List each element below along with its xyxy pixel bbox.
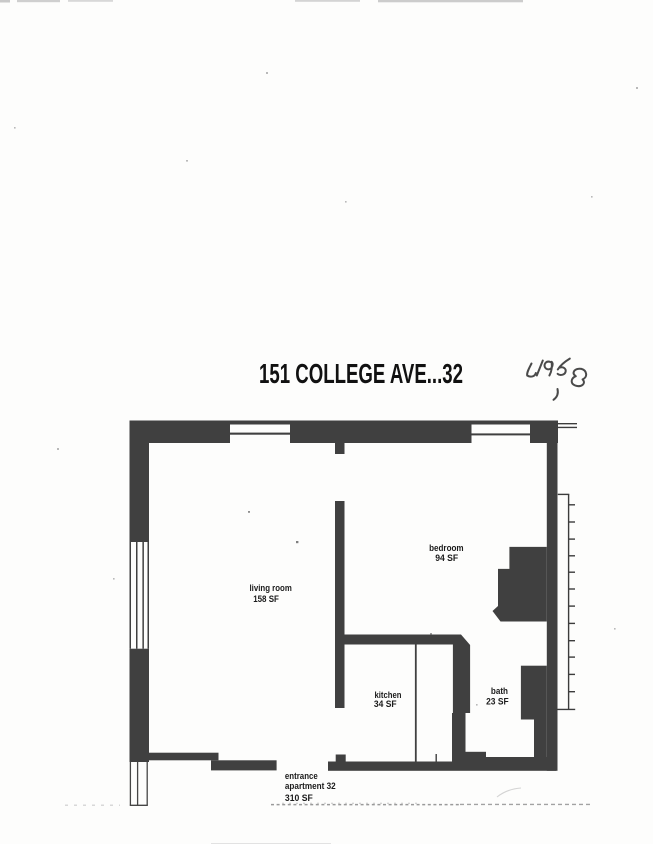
svg-text:94 SF: 94 SF xyxy=(435,553,458,563)
svg-text:158 SF: 158 SF xyxy=(253,594,279,604)
svg-text:23 SF: 23 SF xyxy=(486,697,509,707)
svg-text:bedroom: bedroom xyxy=(429,543,464,553)
svg-text:apartment 32: apartment 32 xyxy=(285,781,336,792)
svg-text:bath: bath xyxy=(491,686,508,696)
svg-text:151 COLLEGE AVE...32: 151 COLLEGE AVE...32 xyxy=(259,358,463,389)
svg-text:living room: living room xyxy=(250,583,292,593)
svg-text:310 SF: 310 SF xyxy=(285,793,313,804)
svg-text:34 SF: 34 SF xyxy=(374,699,397,709)
